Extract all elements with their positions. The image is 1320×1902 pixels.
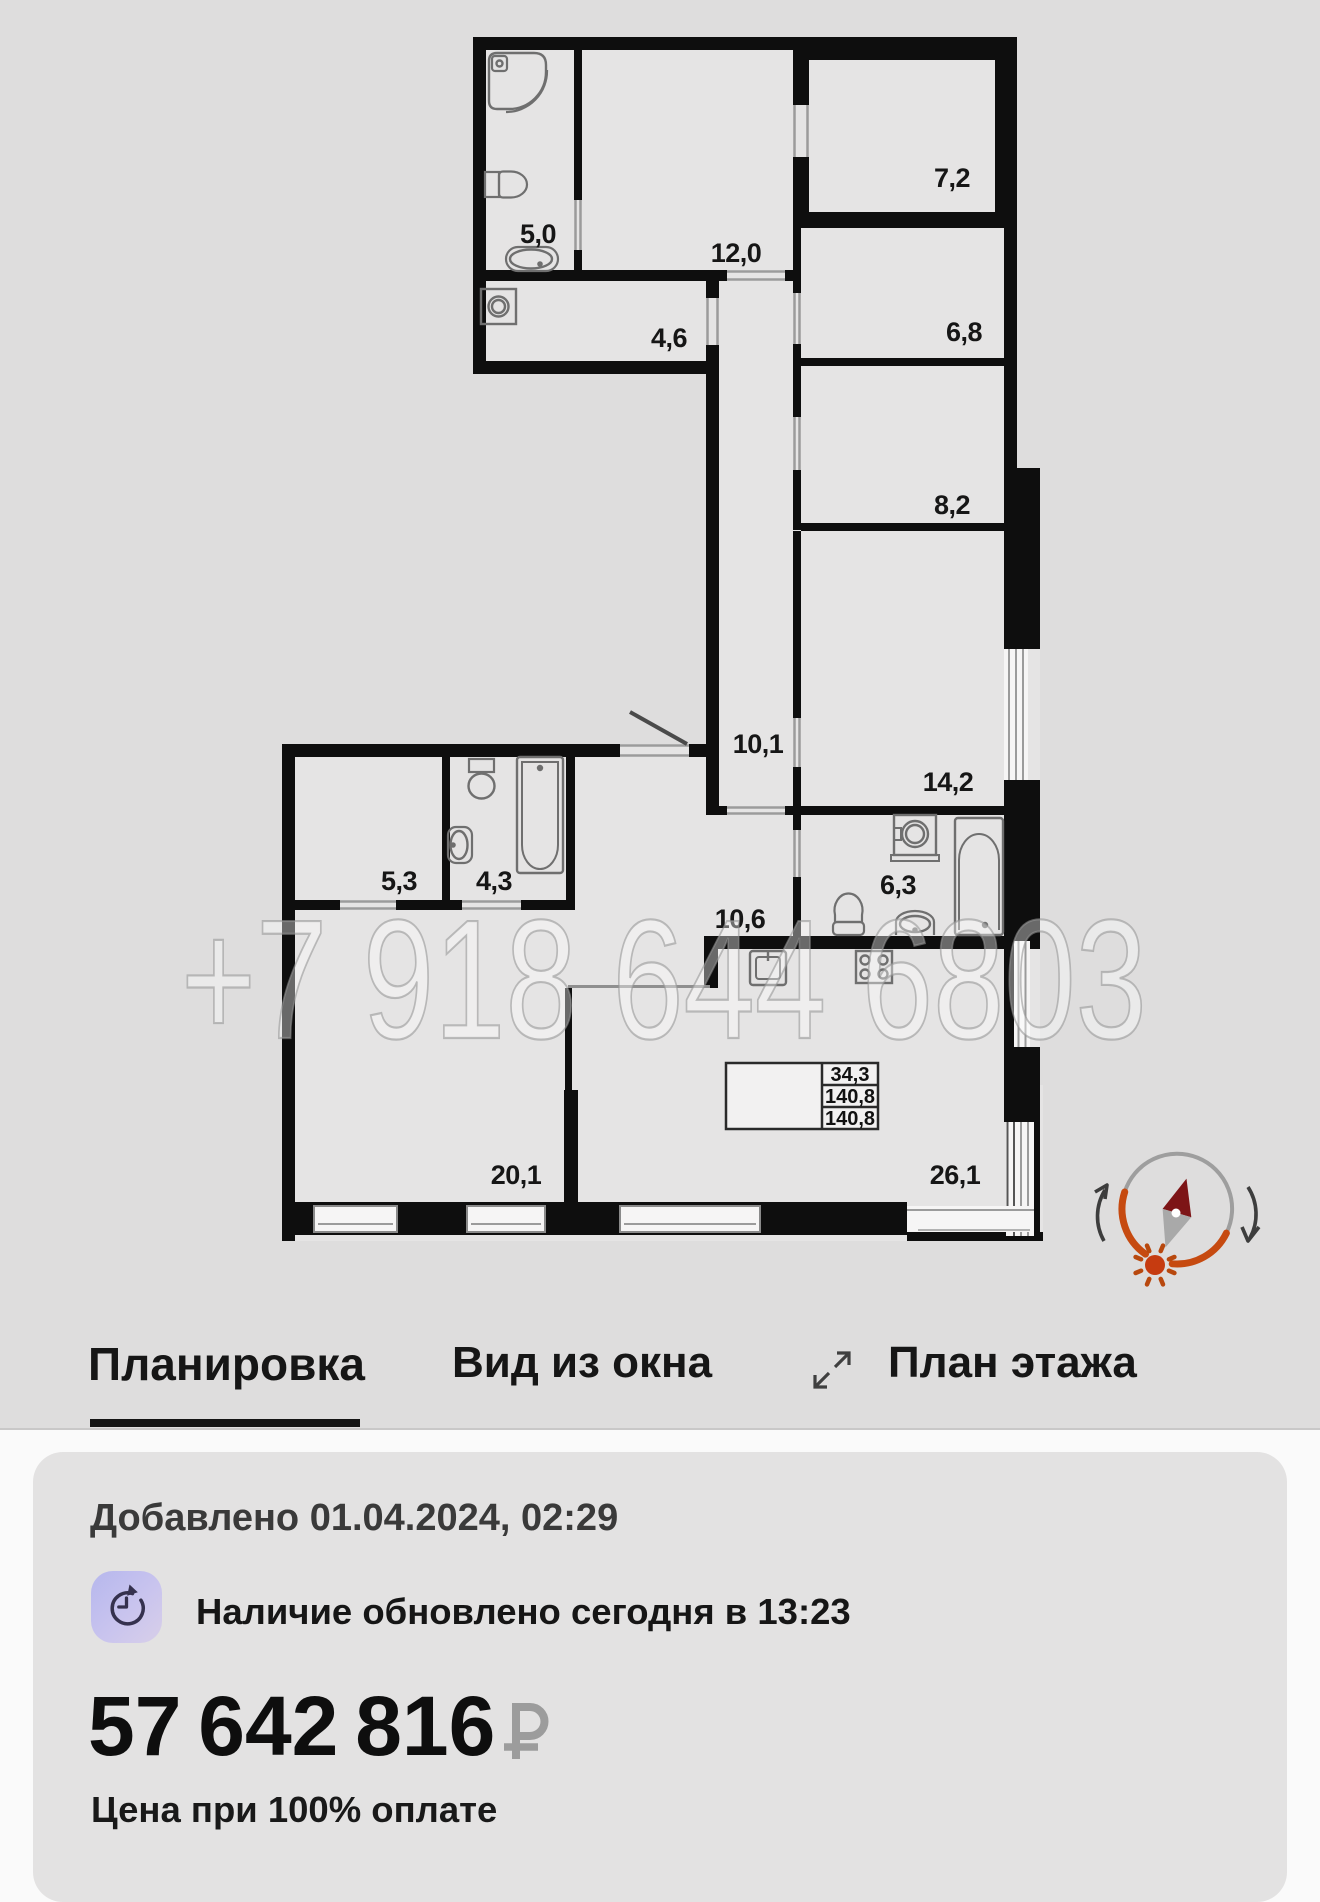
svg-text:7,2: 7,2 <box>934 163 970 193</box>
svg-text:20,1: 20,1 <box>491 1160 542 1190</box>
svg-text:12,0: 12,0 <box>711 238 762 268</box>
svg-text:4,6: 4,6 <box>651 323 688 353</box>
svg-text:26,1: 26,1 <box>930 1160 981 1190</box>
svg-text:14,2: 14,2 <box>923 767 974 797</box>
svg-text:140,8: 140,8 <box>825 1086 875 1108</box>
svg-text:10,1: 10,1 <box>733 729 784 759</box>
svg-text:5,0: 5,0 <box>520 219 556 249</box>
svg-text:6,8: 6,8 <box>946 317 983 347</box>
svg-text:140,8: 140,8 <box>825 1108 875 1130</box>
svg-text:+7 918 644 6803: +7 918 644 6803 <box>181 884 1147 1074</box>
svg-text:8,2: 8,2 <box>934 490 970 520</box>
